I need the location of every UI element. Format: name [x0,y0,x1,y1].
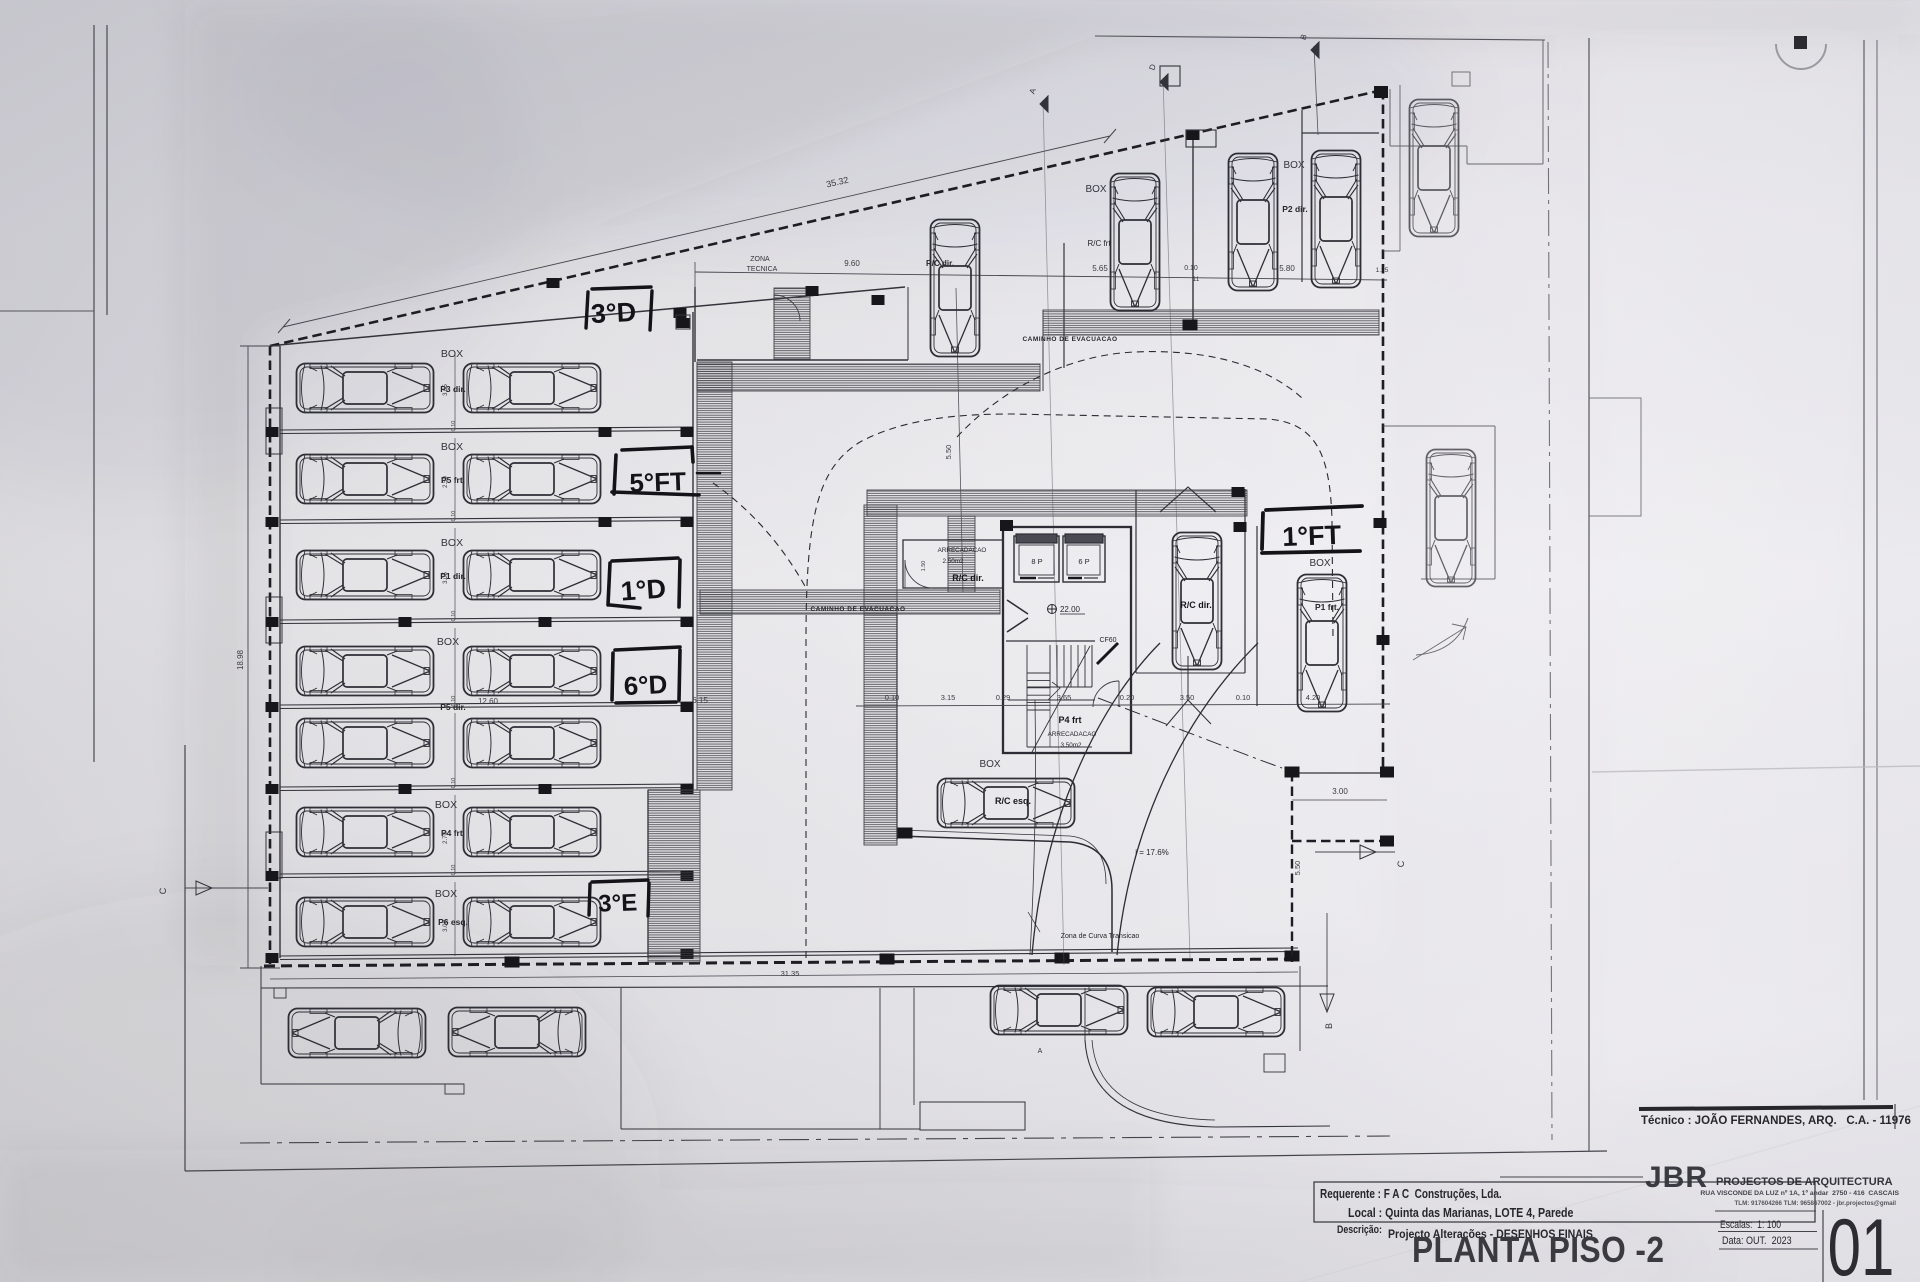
svg-text:CAMINHO DE EVACUACAO: CAMINHO DE EVACUACAO [810,606,905,613]
svg-text:Escalas: 1: 100: Escalas: 1: 100 [1720,1219,1781,1231]
svg-text:BOX: BOX [1309,558,1330,569]
svg-text:22.00: 22.00 [1060,605,1081,614]
svg-text:Requerente : F A C Construçõe: Requerente : F A C Construções, Lda. [1320,1188,1502,1201]
svg-text:5.80: 5.80 [1279,264,1295,273]
svg-text:BOX: BOX [441,537,463,549]
svg-text:BOX: BOX [437,636,459,648]
svg-text:BOX: BOX [435,799,457,811]
svg-text:5.50: 5.50 [944,445,953,460]
svg-text:5.65: 5.65 [1092,264,1108,273]
svg-text:0.10: 0.10 [451,778,457,789]
svg-text:Técnico : JOÃO FERNANDES, ARQ.: Técnico : JOÃO FERNANDES, ARQ. C.A. - 11… [1641,1114,1911,1127]
svg-text:BOX: BOX [441,441,463,453]
svg-text:1°D: 1°D [620,573,667,606]
svg-text:P4 frt: P4 frt [1058,715,1081,725]
svg-text:BOX: BOX [435,888,457,900]
svg-text:JBR: JBR [1645,1161,1708,1194]
svg-text:9.60: 9.60 [844,259,860,268]
svg-text:3°D: 3°D [590,297,637,329]
svg-text:R/C frt: R/C frt [1087,239,1111,248]
svg-text:C: C [1396,860,1406,867]
svg-text:R/C dir.: R/C dir. [1180,600,1212,610]
svg-text:CAMINHO DE EVACUACAO: CAMINHO DE EVACUACAO [1022,336,1117,343]
svg-text:3.65: 3.65 [443,384,449,396]
svg-text:0.10: 0.10 [451,611,457,622]
svg-text:0.10: 0.10 [1184,265,1198,272]
svg-text:3.15: 3.15 [941,693,956,702]
svg-text:01: 01 [1828,1202,1895,1282]
svg-text:R/C esq.: R/C esq. [995,796,1031,806]
svg-text:B: B [1324,1023,1334,1029]
svg-text:3.50m2: 3.50m2 [1060,742,1082,749]
svg-text:2.70: 2.70 [443,832,449,844]
svg-text:Local : Quinta das Marianas, L: Local : Quinta das Marianas, LOTE 4, Par… [1348,1206,1574,1220]
svg-text:1.50: 1.50 [921,561,927,572]
svg-text:PLANTA PISO -2: PLANTA PISO -2 [1412,1230,1664,1270]
svg-text:i = 17.6%: i = 17.6% [1135,848,1169,857]
svg-text:BOX: BOX [1085,184,1106,195]
svg-text:31.35: 31.35 [781,969,800,978]
svg-text:18.98: 18.98 [236,649,245,670]
svg-text:3.00: 3.00 [443,920,449,932]
svg-text:P1 frt.: P1 frt. [1315,602,1339,612]
svg-text:ARRECADACAO: ARRECADACAO [938,547,987,554]
svg-text:8 P: 8 P [1031,557,1042,566]
svg-text:12.60: 12.60 [478,697,499,706]
svg-text:R/C dir.: R/C dir. [952,573,984,583]
svg-text:0.20: 0.20 [1120,693,1135,702]
svg-text:3°E: 3°E [598,889,638,917]
svg-text:6°D: 6°D [623,669,668,701]
svg-text:C: C [158,887,168,894]
svg-text:5°FT: 5°FT [629,466,687,498]
svg-text:2.50m2: 2.50m2 [942,558,964,565]
svg-text:A: A [1038,1048,1043,1055]
svg-text:0.29: 0.29 [996,693,1011,702]
svg-text:P2 dir.: P2 dir. [1282,204,1308,214]
svg-text:CF60: CF60 [1099,637,1116,644]
svg-text:0.10: 0.10 [1236,693,1251,702]
svg-text:0.10: 0.10 [451,421,457,432]
svg-text:0.10: 0.10 [451,511,457,522]
svg-text:1°FT: 1°FT [1282,520,1342,552]
svg-text:ARRECADACAO: ARRECADACAO [1048,731,1097,738]
svg-text:Zona de Curva Transicao: Zona de Curva Transicao [1061,933,1140,940]
svg-text:Descrição:: Descrição: [1337,1224,1382,1236]
svg-text:3.00: 3.00 [1332,787,1348,796]
svg-text:BOX: BOX [1283,160,1304,171]
svg-text:0.10: 0.10 [451,696,457,707]
svg-text:Data: OUT. 2023: Data: OUT. 2023 [1722,1235,1792,1247]
svg-text:BOX: BOX [441,348,463,360]
svg-text:0.10: 0.10 [451,865,457,876]
svg-text:ZONA: ZONA [750,256,770,263]
svg-text:BOX: BOX [979,759,1000,770]
svg-text:RUA VISCONDE DA LUZ nº 1A, 1º: RUA VISCONDE DA LUZ nº 1A, 1º andar 2750… [1700,1190,1899,1197]
svg-text:3.05: 3.05 [443,572,449,584]
svg-text:2.50: 2.50 [443,476,449,488]
svg-text:3.65: 3.65 [1057,693,1072,702]
svg-text:5.50: 5.50 [1293,861,1302,876]
svg-text:6 P: 6 P [1078,557,1089,566]
svg-text:TECNICA: TECNICA [747,266,778,273]
